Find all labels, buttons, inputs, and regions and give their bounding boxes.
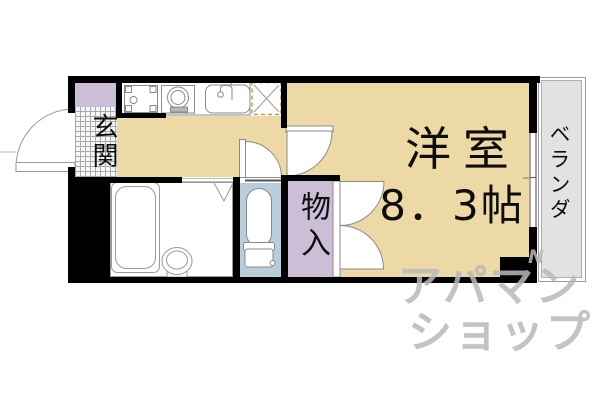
refrigerator-space-icon <box>252 83 281 115</box>
wall-hall-lower <box>281 175 340 181</box>
kitchen-counter <box>121 82 250 115</box>
kitchen-hall-floor <box>117 116 287 177</box>
shoe-cabinet-area <box>75 83 117 107</box>
wall-entrance-kitchen <box>116 83 122 116</box>
wall-under-counter <box>116 113 166 118</box>
watermark-line2: ショップ <box>408 296 592 360</box>
wall-left-block <box>68 177 110 283</box>
watermark-mark: N <box>528 246 546 268</box>
kitchen-sink-icon <box>206 79 251 113</box>
wall-right-upper <box>529 83 537 133</box>
entrance-label: 玄関 <box>78 110 116 174</box>
wall-toilet-storage <box>281 181 288 283</box>
wall-left-upper <box>68 76 75 113</box>
wall-bath-toilet <box>233 177 240 283</box>
veranda-label: ベランダ <box>546 112 570 234</box>
entrance-door <box>0 109 75 172</box>
floor-plan: 玄関 洋室 8．3帖 物入 ベランダ アパマン ショップ N <box>0 0 600 400</box>
bathroom-area <box>110 182 233 277</box>
toilet-room-floor <box>240 183 281 277</box>
wall-bathroom-top <box>110 177 182 183</box>
wall-kitchen-room <box>281 83 287 128</box>
washing-machine-pan-icon <box>125 86 158 113</box>
storage-label: 物入 <box>294 187 328 267</box>
room-size-label: 8．3帖 <box>368 184 536 228</box>
stove-burner-icon <box>162 86 195 114</box>
western-room-label: 洋室 <box>398 125 528 173</box>
wall-top <box>68 76 540 83</box>
